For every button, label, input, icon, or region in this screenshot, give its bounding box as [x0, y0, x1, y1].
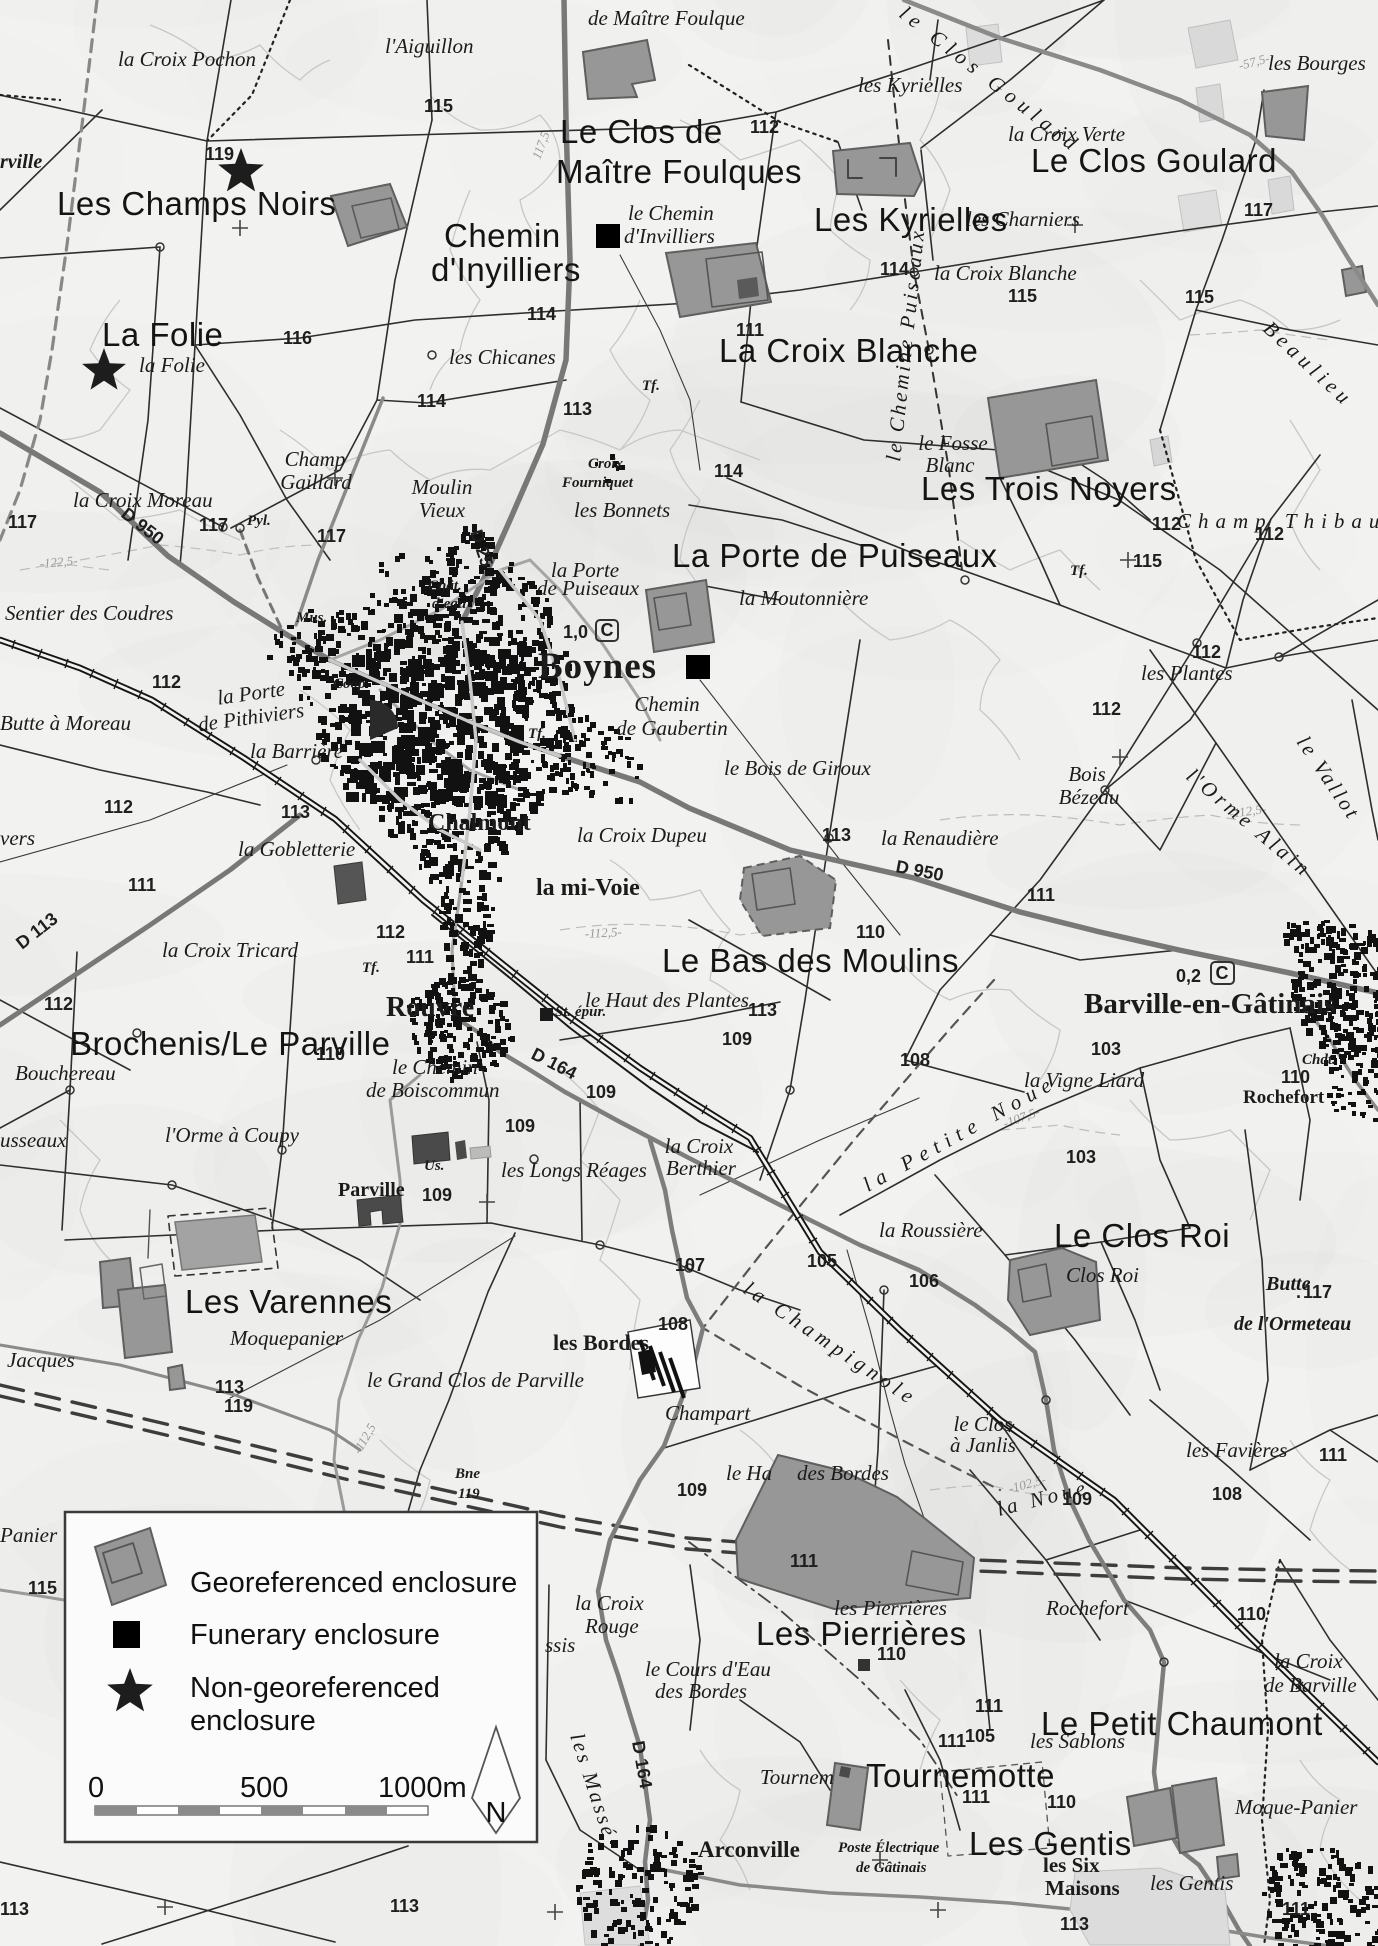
svg-text:Sentier des Coudres: Sentier des Coudres	[5, 601, 173, 625]
svg-text:Moulin: Moulin	[411, 475, 473, 499]
svg-text:Tf.: Tf.	[528, 726, 546, 742]
svg-text:112: 112	[1192, 642, 1221, 662]
svg-text:114: 114	[714, 461, 743, 481]
svg-text:109: 109	[677, 1480, 707, 1500]
svg-text:la mi-Voie: la mi-Voie	[536, 875, 640, 901]
svg-text:113: 113	[822, 825, 851, 845]
svg-text:105: 105	[807, 1251, 837, 1271]
svg-text:d'eau: d'eau	[432, 596, 466, 612]
svg-text:111: 111	[128, 875, 156, 895]
svg-text:le Chemin: le Chemin	[628, 201, 714, 225]
svg-text:la Folie: la Folie	[139, 353, 205, 377]
svg-text:114: 114	[417, 391, 446, 411]
svg-text:les Longs Réages: les Longs Réages	[501, 1158, 647, 1182]
svg-text:Croix: Croix	[588, 456, 624, 472]
svg-text:Boynes: Boynes	[538, 646, 657, 687]
svg-text:Poste Électrique: Poste Électrique	[838, 1839, 940, 1856]
svg-text:Maisons: Maisons	[1045, 1876, 1120, 1900]
svg-text:109: 109	[1062, 1489, 1092, 1509]
svg-text:Tf.: Tf.	[642, 378, 660, 394]
svg-text:Butte: Butte	[1265, 1273, 1311, 1295]
svg-text:112: 112	[1092, 699, 1121, 719]
svg-text:Rochefort: Rochefort	[1045, 1596, 1130, 1620]
svg-text:111: 111	[1027, 885, 1055, 905]
svg-text:109: 109	[722, 1029, 752, 1049]
svg-text:Chât.: Chât.	[428, 578, 462, 594]
svg-text:114: 114	[527, 304, 556, 324]
svg-text:Funerary enclosure: Funerary enclosure	[190, 1619, 440, 1651]
svg-text:de Barville: de Barville	[1264, 1673, 1357, 1697]
svg-text:Bouchereau: Bouchereau	[15, 1061, 116, 1085]
svg-text:Non-georeferenced: Non-georeferenced	[190, 1672, 440, 1704]
svg-text:112: 112	[750, 117, 779, 137]
svg-text:La Croix Blanche: La Croix Blanche	[719, 332, 978, 369]
svg-text:ssis: ssis	[545, 1633, 575, 1657]
svg-text:Clos Roi: Clos Roi	[1066, 1263, 1139, 1287]
svg-text:Chalmont: Chalmont	[428, 810, 531, 836]
svg-text:Tournemotte: Tournemotte	[866, 1757, 1055, 1794]
svg-text:109: 109	[422, 1185, 452, 1205]
svg-text:Moque-Panier: Moque-Panier	[1234, 1795, 1358, 1819]
svg-text:Barville-en-Gâtinais: Barville-en-Gâtinais	[1084, 988, 1335, 1020]
svg-text:112: 112	[1152, 514, 1181, 534]
svg-text:113: 113	[0, 1899, 29, 1919]
svg-text:la Croix Pochon: la Croix Pochon	[118, 47, 256, 71]
svg-text:0: 0	[88, 1772, 104, 1804]
svg-text:Le Bas des Moulins: Le Bas des Moulins	[662, 942, 959, 979]
svg-text:108: 108	[1212, 1484, 1242, 1504]
svg-text:117: 117	[1244, 200, 1273, 220]
svg-text:la Roussière: la Roussière	[879, 1218, 983, 1242]
svg-text:le Haut des Plantes: le Haut des Plantes	[585, 988, 749, 1012]
svg-text:Tf.: Tf.	[362, 960, 380, 976]
svg-text:111: 111	[1282, 1899, 1310, 1919]
svg-text:Les Kyrielles: Les Kyrielles	[814, 201, 1008, 238]
svg-text:1,0: 1,0	[563, 622, 588, 642]
svg-text:de Boiscommun: de Boiscommun	[366, 1078, 500, 1102]
svg-text:les Chicanes: les Chicanes	[449, 345, 556, 369]
svg-text:115: 115	[1008, 286, 1037, 306]
svg-text:la Croix Tricard: la Croix Tricard	[162, 938, 299, 962]
svg-text:113: 113	[215, 1377, 244, 1397]
svg-text:les Six: les Six	[1043, 1853, 1100, 1877]
svg-text:de Maître Foulque: de Maître Foulque	[588, 6, 745, 30]
svg-text:la Moutonnière: la Moutonnière	[739, 586, 868, 610]
svg-text:110: 110	[1237, 1604, 1266, 1624]
svg-text:Le Clos Roi: Le Clos Roi	[1054, 1217, 1230, 1254]
svg-text:114: 114	[880, 259, 909, 279]
svg-text:Bois: Bois	[1068, 762, 1105, 786]
svg-text:115: 115	[424, 96, 453, 116]
svg-text:Rochefort: Rochefort	[1243, 1087, 1325, 1108]
svg-text:C: C	[1216, 963, 1229, 983]
svg-text:Gaillard: Gaillard	[280, 470, 352, 494]
svg-text:Brochenis/Le Parville: Brochenis/Le Parville	[70, 1025, 391, 1062]
svg-text:la Croix: la Croix	[575, 1591, 644, 1615]
svg-text:119: 119	[458, 1486, 480, 1502]
svg-text:Berthier: Berthier	[666, 1156, 737, 1180]
svg-text:103: 103	[1091, 1039, 1121, 1059]
svg-text:106: 106	[909, 1271, 939, 1291]
svg-text:Les Pierrières: Les Pierrières	[756, 1615, 967, 1652]
svg-text:à Janlis: à Janlis	[950, 1433, 1016, 1457]
svg-text:Mus.: Mus.	[295, 610, 327, 626]
svg-text:109: 109	[586, 1082, 616, 1102]
svg-text:105: 105	[965, 1726, 995, 1746]
svg-text:500: 500	[240, 1772, 288, 1804]
svg-text:115: 115	[28, 1578, 57, 1598]
svg-text:111: 111	[406, 947, 434, 967]
svg-text:de Puiseaux: de Puiseaux	[537, 576, 640, 600]
svg-text:C: C	[601, 620, 614, 640]
svg-text:112: 112	[152, 672, 181, 692]
svg-text:107: 107	[675, 1255, 705, 1275]
svg-text:St. épur.: St. épur.	[555, 1004, 606, 1020]
svg-text:112: 112	[104, 797, 133, 817]
svg-text:la Croix: la Croix	[1274, 1649, 1343, 1673]
svg-text:les Bourges: les Bourges	[1268, 51, 1366, 75]
svg-text:les Kyrielles: les Kyrielles	[858, 73, 962, 97]
svg-text:Jacques: Jacques	[7, 1348, 75, 1372]
svg-text:117: 117	[8, 512, 37, 532]
svg-text:113: 113	[1060, 1914, 1089, 1934]
svg-text:117: 117	[199, 515, 228, 535]
svg-text:rville: rville	[0, 151, 42, 173]
svg-text:la Croix Blanche: la Croix Blanche	[934, 261, 1077, 285]
svg-text:Us.: Us.	[424, 1158, 444, 1174]
svg-text:de Gâtinais: de Gâtinais	[856, 1860, 927, 1876]
svg-text:1000m: 1000m	[378, 1772, 467, 1804]
svg-text:la Renaudière: la Renaudière	[881, 826, 999, 850]
svg-text:Champ: Champ	[285, 447, 346, 471]
svg-text:le Fosse: le Fosse	[918, 431, 987, 455]
svg-text:Vieux: Vieux	[419, 498, 466, 522]
svg-text:Champart: Champart	[665, 1401, 751, 1425]
svg-text:les Bonnets: les Bonnets	[574, 498, 670, 522]
svg-text:enclosure: enclosure	[190, 1705, 316, 1737]
svg-text:Rouvre: Rouvre	[386, 992, 474, 1023]
svg-text:Pyl.: Pyl.	[247, 513, 271, 529]
svg-text:103: 103	[1066, 1147, 1096, 1167]
svg-text:les Favières: les Favières	[1186, 1438, 1287, 1462]
svg-text:115: 115	[1185, 287, 1214, 307]
svg-text:110: 110	[856, 922, 885, 942]
svg-text:110: 110	[1281, 1067, 1310, 1087]
svg-text:les Plantes: les Plantes	[1141, 661, 1233, 685]
svg-text:le Grand Clos de Parville: le Grand Clos de Parville	[367, 1368, 584, 1392]
svg-text:119: 119	[205, 144, 234, 164]
svg-text:l'Aiguillon: l'Aiguillon	[385, 34, 474, 58]
svg-text:Panier: Panier	[0, 1523, 58, 1547]
svg-text:Les Varennes: Les Varennes	[185, 1283, 392, 1320]
svg-text:Les Champs Noirs: Les Champs Noirs	[57, 185, 336, 222]
svg-text:d'Invilliers: d'Invilliers	[624, 224, 715, 248]
svg-text:111: 111	[938, 1731, 966, 1751]
svg-text:113: 113	[281, 802, 310, 822]
svg-text:Tf.: Tf.	[1070, 563, 1088, 579]
svg-text:115: 115	[1133, 551, 1162, 571]
svg-text:111: 111	[1319, 1445, 1347, 1465]
svg-text:vers: vers	[0, 826, 35, 850]
svg-text:110: 110	[1047, 1792, 1076, 1812]
svg-text:Tournem: Tournem	[760, 1765, 834, 1789]
svg-text:113: 113	[748, 1000, 777, 1020]
svg-text:Le Clos de: Le Clos de	[560, 113, 723, 150]
svg-text:Chemin: Chemin	[634, 692, 699, 716]
svg-text:113: 113	[563, 399, 592, 419]
svg-text:109: 109	[505, 1116, 535, 1136]
svg-text:La Porte de Puiseaux: La Porte de Puiseaux	[672, 537, 998, 574]
svg-text:le Cours d'Eau: le Cours d'Eau	[645, 1657, 771, 1681]
svg-text:le Bois de Giroux: le Bois de Giroux	[724, 756, 871, 780]
svg-text:Fourniquet: Fourniquet	[561, 475, 634, 491]
svg-text:108: 108	[900, 1050, 930, 1070]
svg-text:0,2: 0,2	[1176, 966, 1201, 986]
svg-text:Chdt.: Chdt.	[1302, 1052, 1336, 1068]
svg-text:les Bordes: les Bordes	[553, 1330, 649, 1355]
svg-text:116: 116	[283, 328, 312, 348]
svg-text:108: 108	[658, 1314, 688, 1334]
svg-text:112: 112	[376, 922, 405, 942]
svg-text:Parville: Parville	[338, 1179, 405, 1201]
svg-text:la Gobletterie: la Gobletterie	[238, 837, 355, 861]
svg-text:la Croix Dupeu: la Croix Dupeu	[577, 823, 707, 847]
svg-text:112: 112	[44, 994, 73, 1014]
svg-text:les Gentis: les Gentis	[1150, 1871, 1233, 1895]
svg-text:Le Clos Goulard: Le Clos Goulard	[1031, 142, 1277, 179]
svg-text:Maître Foulques: Maître Foulques	[556, 153, 802, 190]
svg-text:Le Petit Chaumont: Le Petit Chaumont	[1041, 1705, 1323, 1742]
svg-text:117: 117	[317, 526, 346, 546]
svg-text:des Bordes: des Bordes	[655, 1679, 747, 1703]
svg-text:la Croix Moreau: la Croix Moreau	[73, 488, 213, 512]
svg-text:Les Trois Noyers: Les Trois Noyers	[921, 470, 1177, 507]
svg-text:113: 113	[390, 1896, 419, 1916]
svg-text:Rouge: Rouge	[584, 1614, 639, 1638]
svg-text:des Bordes: des Bordes	[797, 1461, 889, 1485]
svg-text:N: N	[486, 1797, 507, 1829]
svg-text:Coop: Coop	[333, 676, 366, 692]
svg-text:la Barrière: la Barrière	[250, 739, 343, 763]
svg-text:Bézeau: Bézeau	[1059, 785, 1120, 809]
svg-text:La Folie: La Folie	[102, 316, 223, 353]
svg-text:de Gaubertin: de Gaubertin	[616, 716, 727, 740]
svg-text:de l'Ormeteau: de l'Ormeteau	[1234, 1313, 1351, 1335]
svg-text:usseaux: usseaux	[0, 1128, 67, 1152]
svg-text:Moquepanier: Moquepanier	[229, 1326, 344, 1350]
svg-text:.: .	[1296, 1282, 1301, 1302]
svg-text:d'Inyilliers: d'Inyilliers	[431, 251, 581, 288]
svg-text:-112,5-: -112,5-	[584, 924, 622, 941]
svg-text:111: 111	[975, 1696, 1003, 1716]
svg-text:Bne: Bne	[454, 1466, 480, 1482]
svg-text:le Ha: le Ha	[726, 1461, 772, 1485]
svg-text:112: 112	[1255, 524, 1284, 544]
svg-text:Arconville: Arconville	[698, 1837, 800, 1862]
svg-text:l'Orme à Coupy: l'Orme à Coupy	[165, 1123, 300, 1147]
svg-text:la Croix: la Croix	[665, 1134, 734, 1158]
svg-text:111: 111	[790, 1551, 818, 1571]
svg-text:Chemin: Chemin	[444, 217, 561, 254]
svg-text:Georeferenced enclosure: Georeferenced enclosure	[190, 1567, 517, 1599]
svg-text:Butte à Moreau: Butte à Moreau	[0, 711, 131, 735]
svg-text:le Chemin-: le Chemin-	[392, 1055, 485, 1079]
svg-text:119: 119	[224, 1396, 253, 1416]
